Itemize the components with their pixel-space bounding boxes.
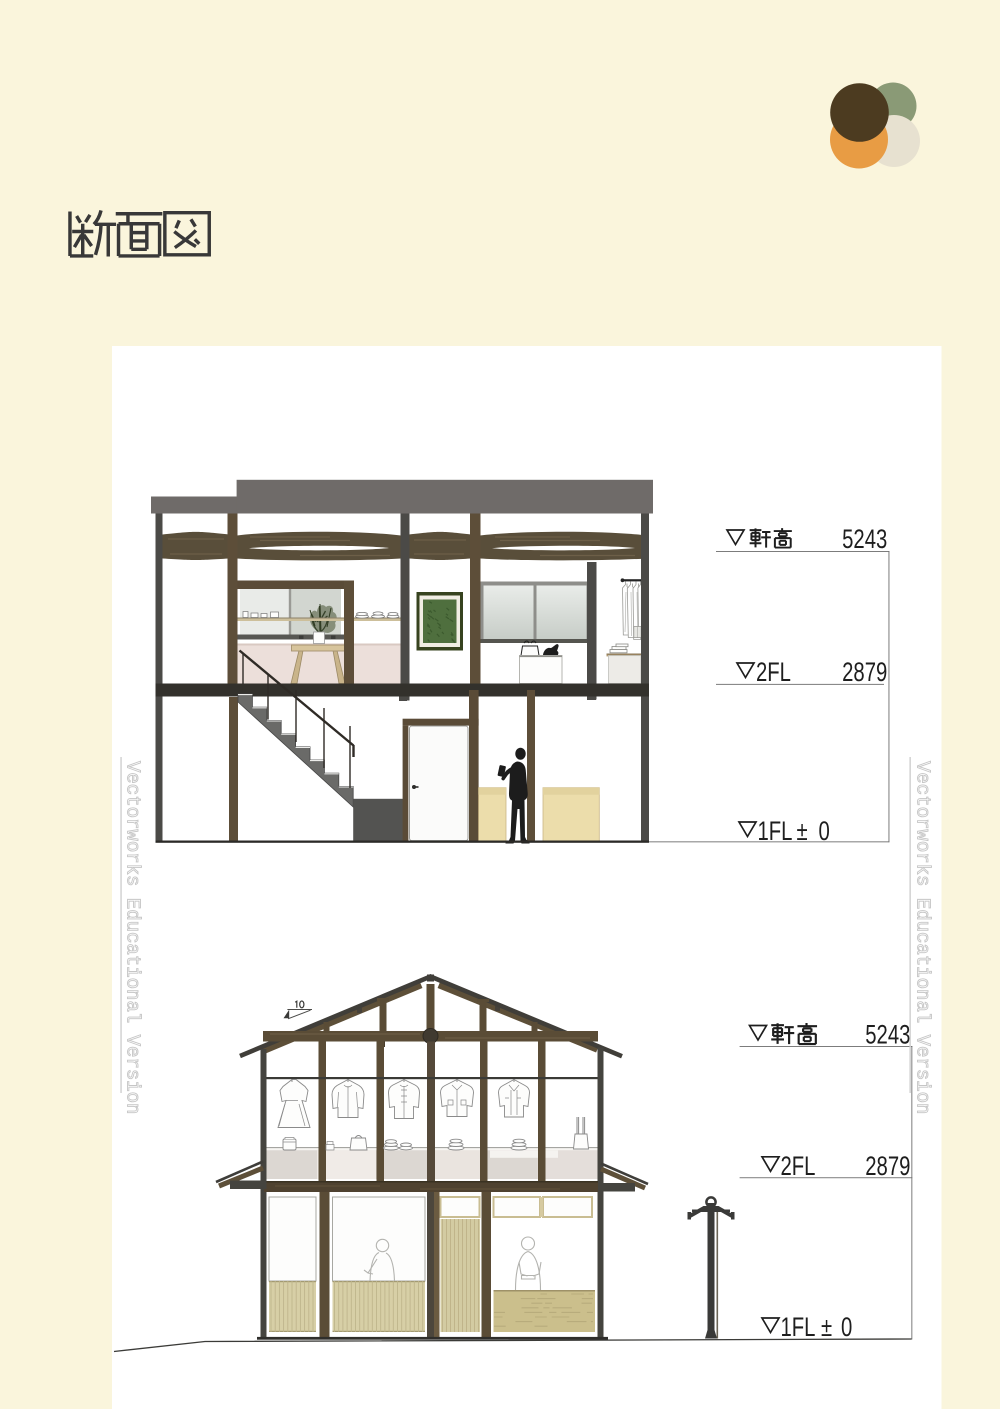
svg-text:0: 0 [841,1312,852,1343]
svg-text:2879: 2879 [842,657,887,688]
svg-text:±: ± [821,1312,832,1343]
svg-text:0: 0 [819,816,830,847]
svg-text:1FL: 1FL [781,1312,816,1343]
svg-text:2FL: 2FL [756,657,791,688]
svg-text:Vectorworks Educational Versio: Vectorworks Educational Version [122,761,144,1114]
svg-text:5243: 5243 [842,524,887,555]
svg-text:5243: 5243 [865,1020,910,1051]
svg-text:2879: 2879 [865,1151,910,1182]
svg-text:±: ± [797,816,808,847]
svg-text:1FL: 1FL [758,816,793,847]
svg-text:Vectorworks Educational Versio: Vectorworks Educational Version [911,761,933,1114]
svg-text:2FL: 2FL [781,1151,816,1182]
